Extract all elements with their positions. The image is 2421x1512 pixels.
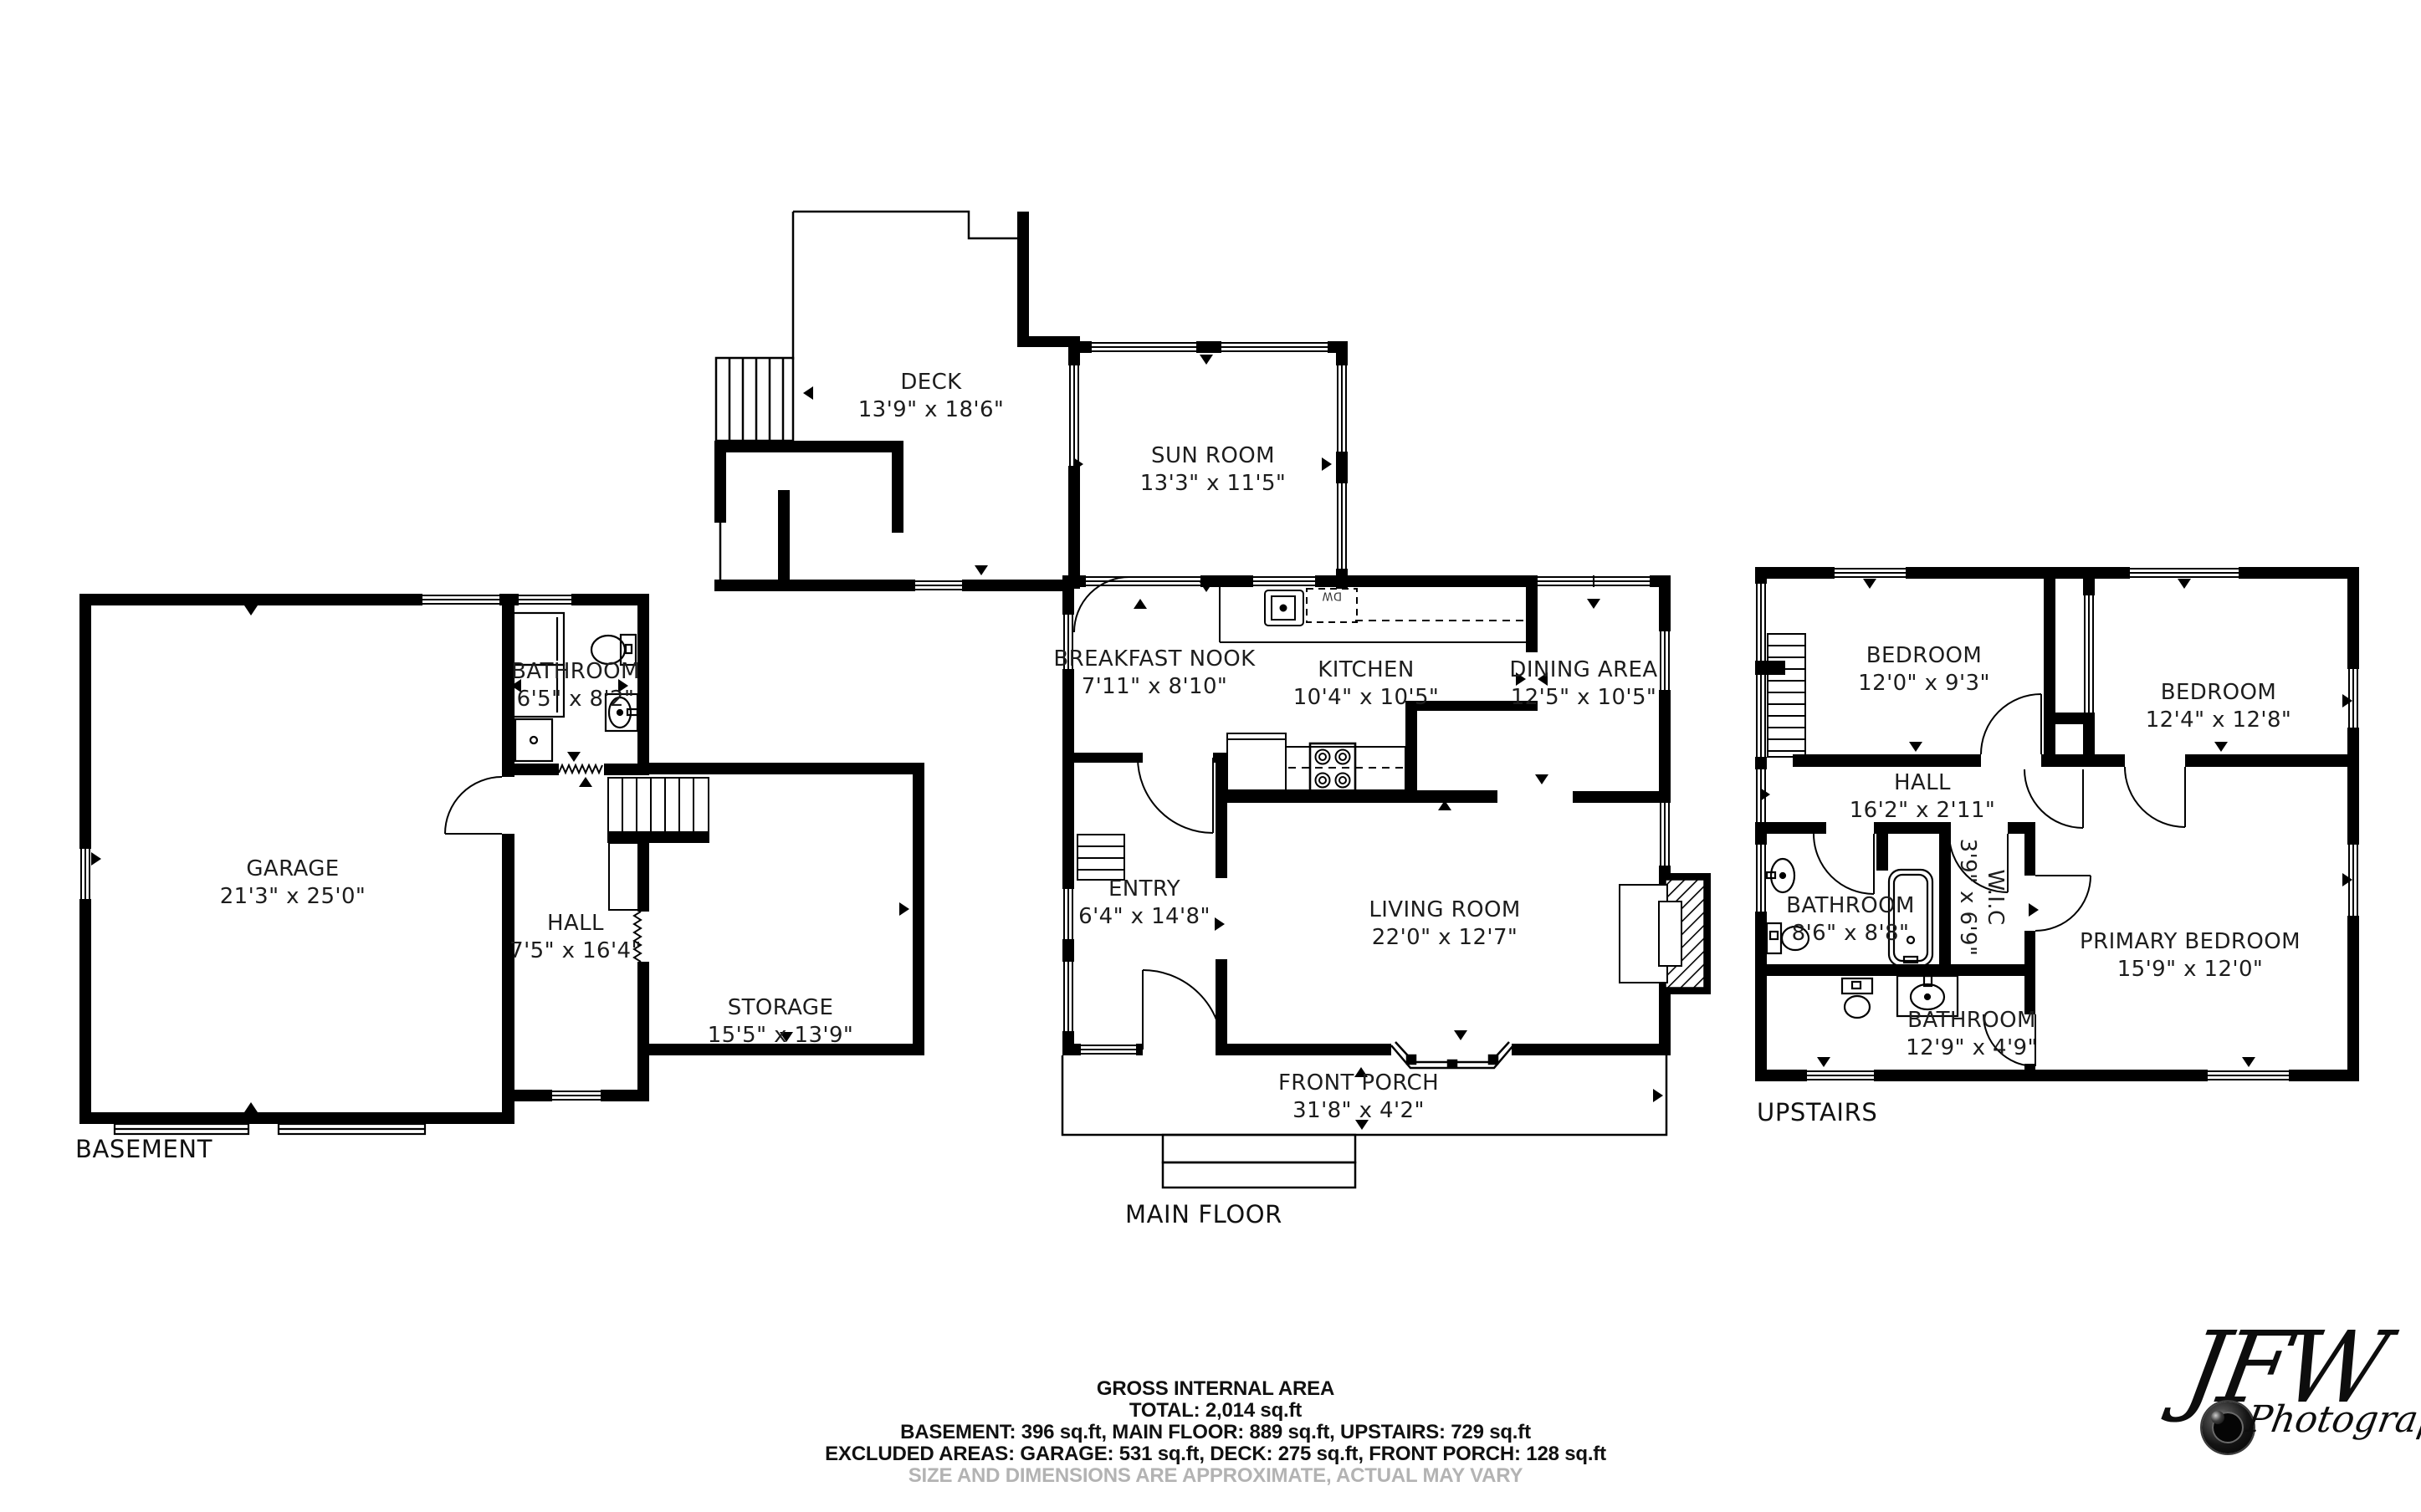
- room-label-sun-room: SUN ROOM 13'3" x 11'5": [1140, 442, 1287, 498]
- room-label-breakfast-nook: BREAKFAST NOOK 7'11" x 8'10": [1053, 646, 1255, 701]
- room-name: SUN ROOM: [1151, 442, 1275, 470]
- room-label-entry: ENTRY 6'4" x 14'8": [1078, 876, 1210, 931]
- floor-title-basement: BASEMENT: [75, 1135, 212, 1163]
- room-label-upstairs-bathroom-1: BATHROOM 8'6" x 8'8": [1786, 892, 1915, 948]
- room-label-living-room: LIVING ROOM 22'0" x 12'7": [1369, 896, 1520, 952]
- room-name: FRONT PORCH: [1278, 1070, 1439, 1097]
- room-name: W.I.C: [1981, 869, 2009, 925]
- room-label-storage: STORAGE 15'5" x 13'9": [708, 994, 854, 1050]
- garage-door-swing: [445, 777, 502, 834]
- room-label-dining-area: DINING AREA 12'5" x 10'5": [1509, 656, 1657, 712]
- room-dims: 12'9" x 4'9": [1906, 1034, 2038, 1062]
- room-name: BATHROOM: [1907, 1007, 2036, 1034]
- camera-lens-core: [2211, 1411, 2224, 1424]
- bay-window: [1391, 1042, 1513, 1068]
- interior-door-swings: [1074, 577, 1213, 833]
- room-label-basement-hall: HALL 7'5" x 16'4": [509, 910, 642, 965]
- room-label-upstairs-hall: HALL 16'2" x 2'11": [1850, 769, 1996, 825]
- floor-plan-page: GARAGE 21'3" x 25'0" BATHROOM 6'5" x 8'2…: [0, 0, 2421, 1512]
- room-name: HALL: [547, 910, 604, 937]
- room-dims: 31'8" x 4'2": [1292, 1097, 1425, 1125]
- fireplace: [1620, 873, 1711, 994]
- room-dims: 3'9" x 6'9": [1953, 839, 1981, 957]
- room-name: BEDROOM: [2161, 679, 2277, 707]
- room-name: BEDROOM: [1866, 642, 1983, 670]
- area-summary: GROSS INTERNAL AREA TOTAL: 2,014 sq.ft B…: [825, 1378, 1606, 1487]
- room-dims: 10'4" x 10'5": [1293, 684, 1440, 712]
- upstairs-plan: [1755, 567, 2359, 1081]
- room-dims: 15'9" x 12'0": [2117, 956, 2264, 983]
- room-label-bedroom-2: BEDROOM 12'4" x 12'8": [2146, 679, 2292, 734]
- room-label-upstairs-bathroom-2: BATHROOM 12'9" x 4'9": [1906, 1007, 2038, 1062]
- summary-floors: BASEMENT: 396 sq.ft, MAIN FLOOR: 889 sq.…: [825, 1422, 1606, 1443]
- room-dims: 7'5" x 16'4": [509, 937, 642, 965]
- room-label-basement-bathroom: BATHROOM 6'5" x 8'2": [511, 658, 640, 713]
- entry-stairs: [1077, 835, 1124, 880]
- room-dims: 12'4" x 12'8": [2146, 707, 2292, 734]
- room-name: HALL: [1894, 769, 1951, 797]
- room-label-wic: W.I.C 3'9" x 6'9": [1953, 839, 2009, 957]
- basement-stairs: [608, 778, 709, 910]
- room-name: BATHROOM: [511, 658, 640, 686]
- room-label-deck: DECK 13'9" x 18'6": [858, 369, 1005, 424]
- room-name: PRIMARY BEDROOM: [2080, 928, 2301, 956]
- room-name: BREAKFAST NOOK: [1053, 646, 1255, 673]
- room-label-kitchen: KITCHEN 10'4" x 10'5": [1293, 656, 1440, 712]
- room-dims: 12'5" x 10'5": [1511, 684, 1657, 712]
- summary-heading: GROSS INTERNAL AREA: [825, 1378, 1606, 1400]
- floor-plan-drawing: [0, 0, 2421, 1512]
- room-label-primary-bedroom: PRIMARY BEDROOM 15'9" x 12'0": [2080, 928, 2301, 983]
- room-dims: 6'4" x 14'8": [1078, 903, 1210, 931]
- dishwasher-label: DW: [1322, 590, 1342, 602]
- room-name: STORAGE: [728, 994, 834, 1022]
- summary-disclaimer: SIZE AND DIMENSIONS ARE APPROXIMATE, ACT…: [825, 1465, 1606, 1487]
- room-name: LIVING ROOM: [1369, 896, 1520, 924]
- room-name: DECK: [900, 369, 961, 396]
- upstairs-stairs: [1768, 634, 1805, 757]
- room-dims: 16'2" x 2'11": [1850, 797, 1996, 825]
- room-label-front-porch: FRONT PORCH 31'8" x 4'2": [1278, 1070, 1439, 1125]
- basement-plan: [79, 594, 924, 1134]
- room-name: KITCHEN: [1318, 656, 1414, 684]
- floor-title-main: MAIN FLOOR: [1125, 1200, 1282, 1228]
- room-dims: 15'5" x 13'9": [708, 1022, 854, 1050]
- room-dims: 12'0" x 9'3": [1858, 670, 1990, 697]
- floor-title-upstairs: UPSTAIRS: [1757, 1098, 1877, 1126]
- room-dims: 21'3" x 25'0": [220, 883, 366, 911]
- front-door-swing: [1143, 970, 1222, 1050]
- room-label-garage: GARAGE 21'3" x 25'0": [220, 856, 366, 911]
- room-dims: 13'3" x 11'5": [1140, 470, 1287, 498]
- room-dims: 13'9" x 18'6": [858, 396, 1005, 424]
- logo-word: Photography: [2244, 1398, 2421, 1441]
- room-name: ENTRY: [1108, 876, 1180, 903]
- room-label-bedroom-1: BEDROOM 12'0" x 9'3": [1858, 642, 1990, 697]
- room-name: DINING AREA: [1509, 656, 1657, 684]
- watermark-logo: JFW Photography: [2175, 1321, 2418, 1505]
- room-name: BATHROOM: [1786, 892, 1915, 920]
- garage-doors: [115, 1124, 425, 1134]
- room-dims: 7'11" x 8'10": [1082, 673, 1228, 701]
- room-name: GARAGE: [246, 856, 339, 883]
- room-dims: 6'5" x 8'2": [517, 686, 635, 713]
- room-dims: 8'6" x 8'8": [1792, 920, 1910, 948]
- summary-excluded: EXCLUDED AREAS: GARAGE: 531 sq.ft, DECK:…: [825, 1443, 1606, 1465]
- summary-total: TOTAL: 2,014 sq.ft: [825, 1400, 1606, 1422]
- room-dims: 22'0" x 12'7": [1372, 924, 1518, 952]
